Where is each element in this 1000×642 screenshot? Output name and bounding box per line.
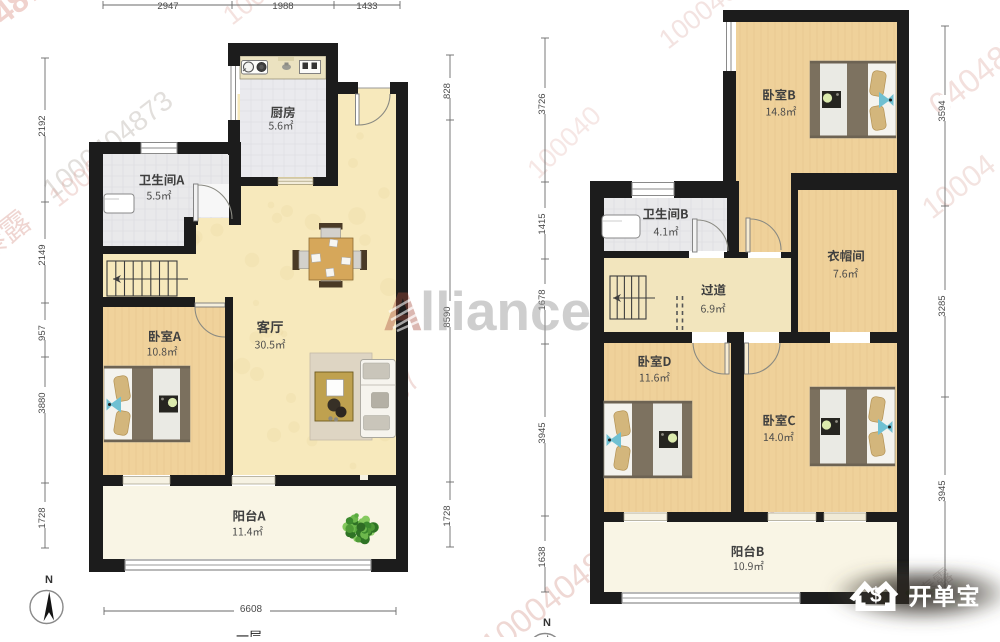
svg-text:3285: 3285 [937, 295, 948, 316]
svg-text:1728: 1728 [37, 507, 48, 528]
svg-text:3726: 3726 [537, 93, 548, 114]
svg-text:N: N [45, 574, 53, 586]
svg-text:1988: 1988 [272, 1, 293, 12]
svg-text:1433: 1433 [356, 1, 377, 12]
svg-text:1415: 1415 [537, 213, 548, 234]
svg-text:N: N [543, 617, 551, 629]
svg-text:6608: 6608 [240, 604, 263, 615]
svg-text:3880: 3880 [37, 392, 48, 413]
svg-text:2192: 2192 [37, 115, 48, 136]
svg-text:957: 957 [37, 325, 48, 341]
svg-text:2149: 2149 [37, 244, 48, 265]
svg-text:3594: 3594 [937, 100, 948, 121]
svg-text:1728: 1728 [442, 505, 453, 526]
svg-text:3945: 3945 [937, 480, 948, 501]
svg-text:$: $ [870, 584, 882, 607]
svg-text:1638: 1638 [537, 546, 548, 567]
svg-text:3945: 3945 [537, 422, 548, 443]
svg-text:lliance: lliance [420, 280, 591, 342]
svg-text:828: 828 [442, 83, 453, 99]
svg-text:2947: 2947 [157, 1, 178, 12]
